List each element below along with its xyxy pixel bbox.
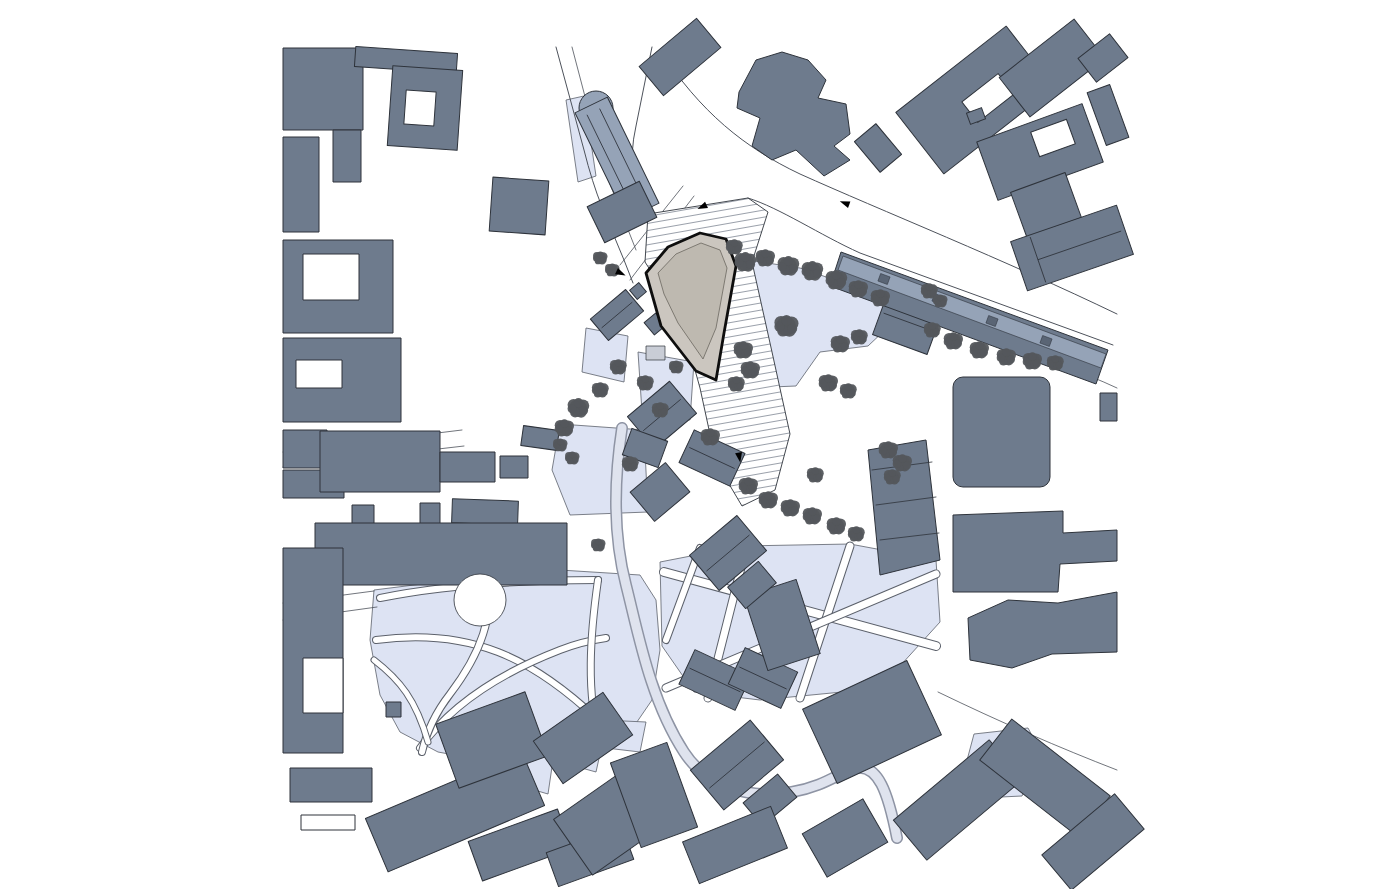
building-top-diag-shape	[639, 18, 721, 95]
tree-blob	[784, 256, 793, 265]
tree-blob	[735, 245, 742, 252]
tree-blob	[937, 294, 943, 300]
building-sw-white-shed	[301, 815, 355, 830]
tree-blob	[595, 538, 601, 544]
tree-blob	[849, 389, 856, 396]
tree	[884, 469, 901, 484]
tree-blob	[749, 484, 757, 492]
tree	[970, 341, 989, 358]
building-palace-tower1	[352, 505, 374, 525]
tree-blob	[579, 406, 588, 415]
tree-blob	[744, 477, 752, 485]
tree	[871, 289, 890, 306]
tree-blob	[642, 375, 649, 382]
tree-blob	[601, 257, 607, 263]
tree	[1023, 352, 1042, 369]
tree-blob	[789, 264, 798, 273]
tree	[565, 451, 579, 464]
tree-blob	[677, 366, 683, 372]
tree-blob	[836, 335, 844, 343]
tree-blob	[1028, 352, 1036, 360]
building-nw-2-court	[404, 90, 436, 126]
tree-blob	[876, 289, 884, 297]
tree	[827, 517, 846, 534]
tree-blob	[824, 374, 832, 382]
tree-blob	[560, 419, 568, 427]
tree-blob	[769, 498, 777, 506]
tree	[849, 280, 868, 297]
tree	[592, 382, 609, 397]
site-plan-svg	[0, 0, 1400, 889]
tree-blob	[889, 448, 897, 456]
building-s-slab-5	[802, 799, 888, 877]
tree	[778, 256, 800, 276]
tree	[848, 526, 865, 541]
tree	[802, 261, 824, 281]
building-campus-a	[320, 431, 440, 492]
tree-blob	[731, 239, 738, 246]
building-church-annex	[854, 124, 901, 173]
tree	[735, 252, 757, 272]
tree-blob	[557, 438, 563, 444]
tree-blob	[889, 469, 896, 476]
tree	[728, 376, 745, 391]
tree	[741, 361, 760, 378]
building-e-hall	[953, 377, 1050, 487]
building-palace-apse	[454, 574, 506, 626]
tree-blob	[627, 456, 634, 463]
tree-blob	[1052, 355, 1059, 362]
tree	[568, 398, 590, 418]
tree-blob	[926, 283, 933, 290]
tree-blob	[1007, 355, 1015, 363]
tree-blob	[657, 402, 664, 409]
tree-blob	[574, 398, 583, 407]
tree-blob	[854, 280, 862, 288]
tree	[652, 402, 669, 417]
building-e-bar	[953, 511, 1117, 592]
tree-blob	[619, 365, 626, 372]
tree-blob	[766, 256, 774, 264]
tree-blob	[1056, 361, 1063, 368]
tree-blob	[859, 287, 867, 295]
tree	[944, 332, 963, 349]
tree-blob	[832, 270, 841, 279]
tree-blob	[746, 260, 755, 269]
tree	[819, 374, 838, 391]
tree	[803, 507, 822, 524]
tree-blob	[1002, 348, 1010, 356]
building-campus-b	[440, 452, 495, 482]
tree-blob	[737, 382, 744, 389]
tree	[591, 538, 605, 551]
building-nw-2-court-shape	[404, 90, 436, 126]
building-sw-bar-court	[303, 658, 343, 713]
tree-blob	[841, 342, 849, 350]
tree-blob	[786, 499, 794, 507]
building-w-block1-court	[303, 254, 359, 300]
tree	[555, 419, 574, 436]
tree-blob	[573, 457, 579, 463]
tree-blob	[884, 441, 892, 449]
tree-blob	[941, 300, 947, 306]
tree	[781, 499, 800, 516]
tree	[622, 456, 639, 471]
tree-blob	[980, 348, 988, 356]
tree-blob	[860, 335, 867, 342]
tree-blob	[661, 408, 668, 415]
building-top-diag	[639, 18, 721, 95]
tree-blob	[673, 360, 679, 366]
building-s-slab-5-shape	[802, 799, 888, 877]
tree-blob	[609, 263, 615, 269]
tree-blob	[1033, 359, 1041, 367]
tree-blob	[975, 341, 983, 349]
entrance-arrow-3	[839, 198, 851, 208]
tree-blob	[615, 359, 622, 366]
tree	[610, 359, 627, 374]
tree-blob	[631, 462, 638, 469]
tree-blob	[808, 261, 817, 270]
tree-blob	[751, 368, 759, 376]
tree-blob	[597, 251, 603, 257]
tree-blob	[787, 324, 797, 334]
tree	[997, 348, 1016, 365]
building-e-edge-small	[1100, 393, 1117, 421]
tree-blob	[929, 322, 936, 329]
tree-blob	[949, 332, 957, 340]
building-s-slab-4-shape	[683, 806, 788, 883]
tree-blob	[791, 506, 799, 514]
tree	[933, 294, 947, 307]
tree	[759, 491, 778, 508]
tree-blob	[569, 451, 575, 457]
tree-blob	[808, 507, 816, 515]
building-campus-d-shape	[452, 499, 519, 525]
tree	[807, 467, 824, 482]
tree	[840, 383, 857, 398]
tree	[831, 335, 850, 352]
building-campus-d	[452, 499, 519, 525]
tree	[851, 329, 868, 344]
tree-blob	[733, 376, 740, 383]
tree-blob	[853, 526, 860, 533]
tree-blob	[954, 339, 962, 347]
tree-blob	[933, 328, 940, 335]
tree-blob	[812, 467, 819, 474]
tree-blob	[741, 252, 750, 261]
tree	[774, 315, 798, 337]
tree	[637, 375, 654, 390]
tree-blob	[711, 435, 719, 443]
park-kiosk-square	[386, 702, 401, 717]
building-campus-c	[500, 456, 528, 478]
tree-blob	[599, 544, 605, 550]
tree-blob	[856, 329, 863, 336]
tree-blob	[893, 475, 900, 482]
tree-blob	[739, 341, 747, 349]
building-nw-5-shape	[489, 177, 549, 235]
tree	[593, 251, 607, 264]
building-nw-4	[333, 130, 361, 182]
building-nw-5	[489, 177, 549, 235]
building-church-complex	[737, 52, 850, 176]
tree-blob	[706, 428, 714, 436]
tree-blob	[744, 348, 752, 356]
tree	[924, 322, 941, 337]
plaza-paving-grid	[646, 346, 665, 360]
building-e-snake	[968, 592, 1117, 668]
page	[0, 0, 1400, 889]
tree-blob	[561, 444, 567, 450]
tree-blob	[832, 517, 840, 525]
tree	[739, 477, 758, 494]
building-w-block2-court	[296, 360, 342, 388]
building-nw-3	[283, 137, 319, 232]
tree-blob	[601, 388, 608, 395]
building-palace	[315, 523, 567, 585]
tree	[893, 454, 912, 471]
tree-blob	[837, 278, 846, 287]
tree-blob	[829, 381, 837, 389]
tree	[553, 438, 567, 451]
tree-blob	[813, 269, 822, 278]
tree	[1047, 355, 1064, 370]
tree	[726, 239, 743, 254]
building-palace-tower2	[420, 503, 440, 525]
tree-blob	[881, 296, 889, 304]
tree-blob	[837, 524, 845, 532]
tree	[734, 341, 753, 358]
tree-blob	[761, 249, 769, 257]
building-sw-low	[290, 768, 372, 802]
tree-blob	[816, 473, 823, 480]
tree-blob	[746, 361, 754, 369]
building-sw-bar	[283, 548, 343, 753]
tree-blob	[565, 426, 573, 434]
tree-blob	[898, 454, 906, 462]
tree	[669, 360, 683, 373]
building-s-slab-4	[683, 806, 788, 883]
tree-blob	[781, 315, 791, 325]
tree	[826, 270, 848, 290]
tree-blob	[845, 383, 852, 390]
tree	[756, 249, 775, 266]
building-nw-1	[283, 48, 363, 130]
building-church-annex-shape	[854, 124, 901, 173]
tree-blob	[646, 381, 653, 388]
tree-blob	[813, 514, 821, 522]
tree-blob	[764, 491, 772, 499]
tree-blob	[903, 461, 911, 469]
tree	[701, 428, 720, 445]
tree-blob	[597, 382, 604, 389]
tree-blob	[857, 532, 864, 539]
